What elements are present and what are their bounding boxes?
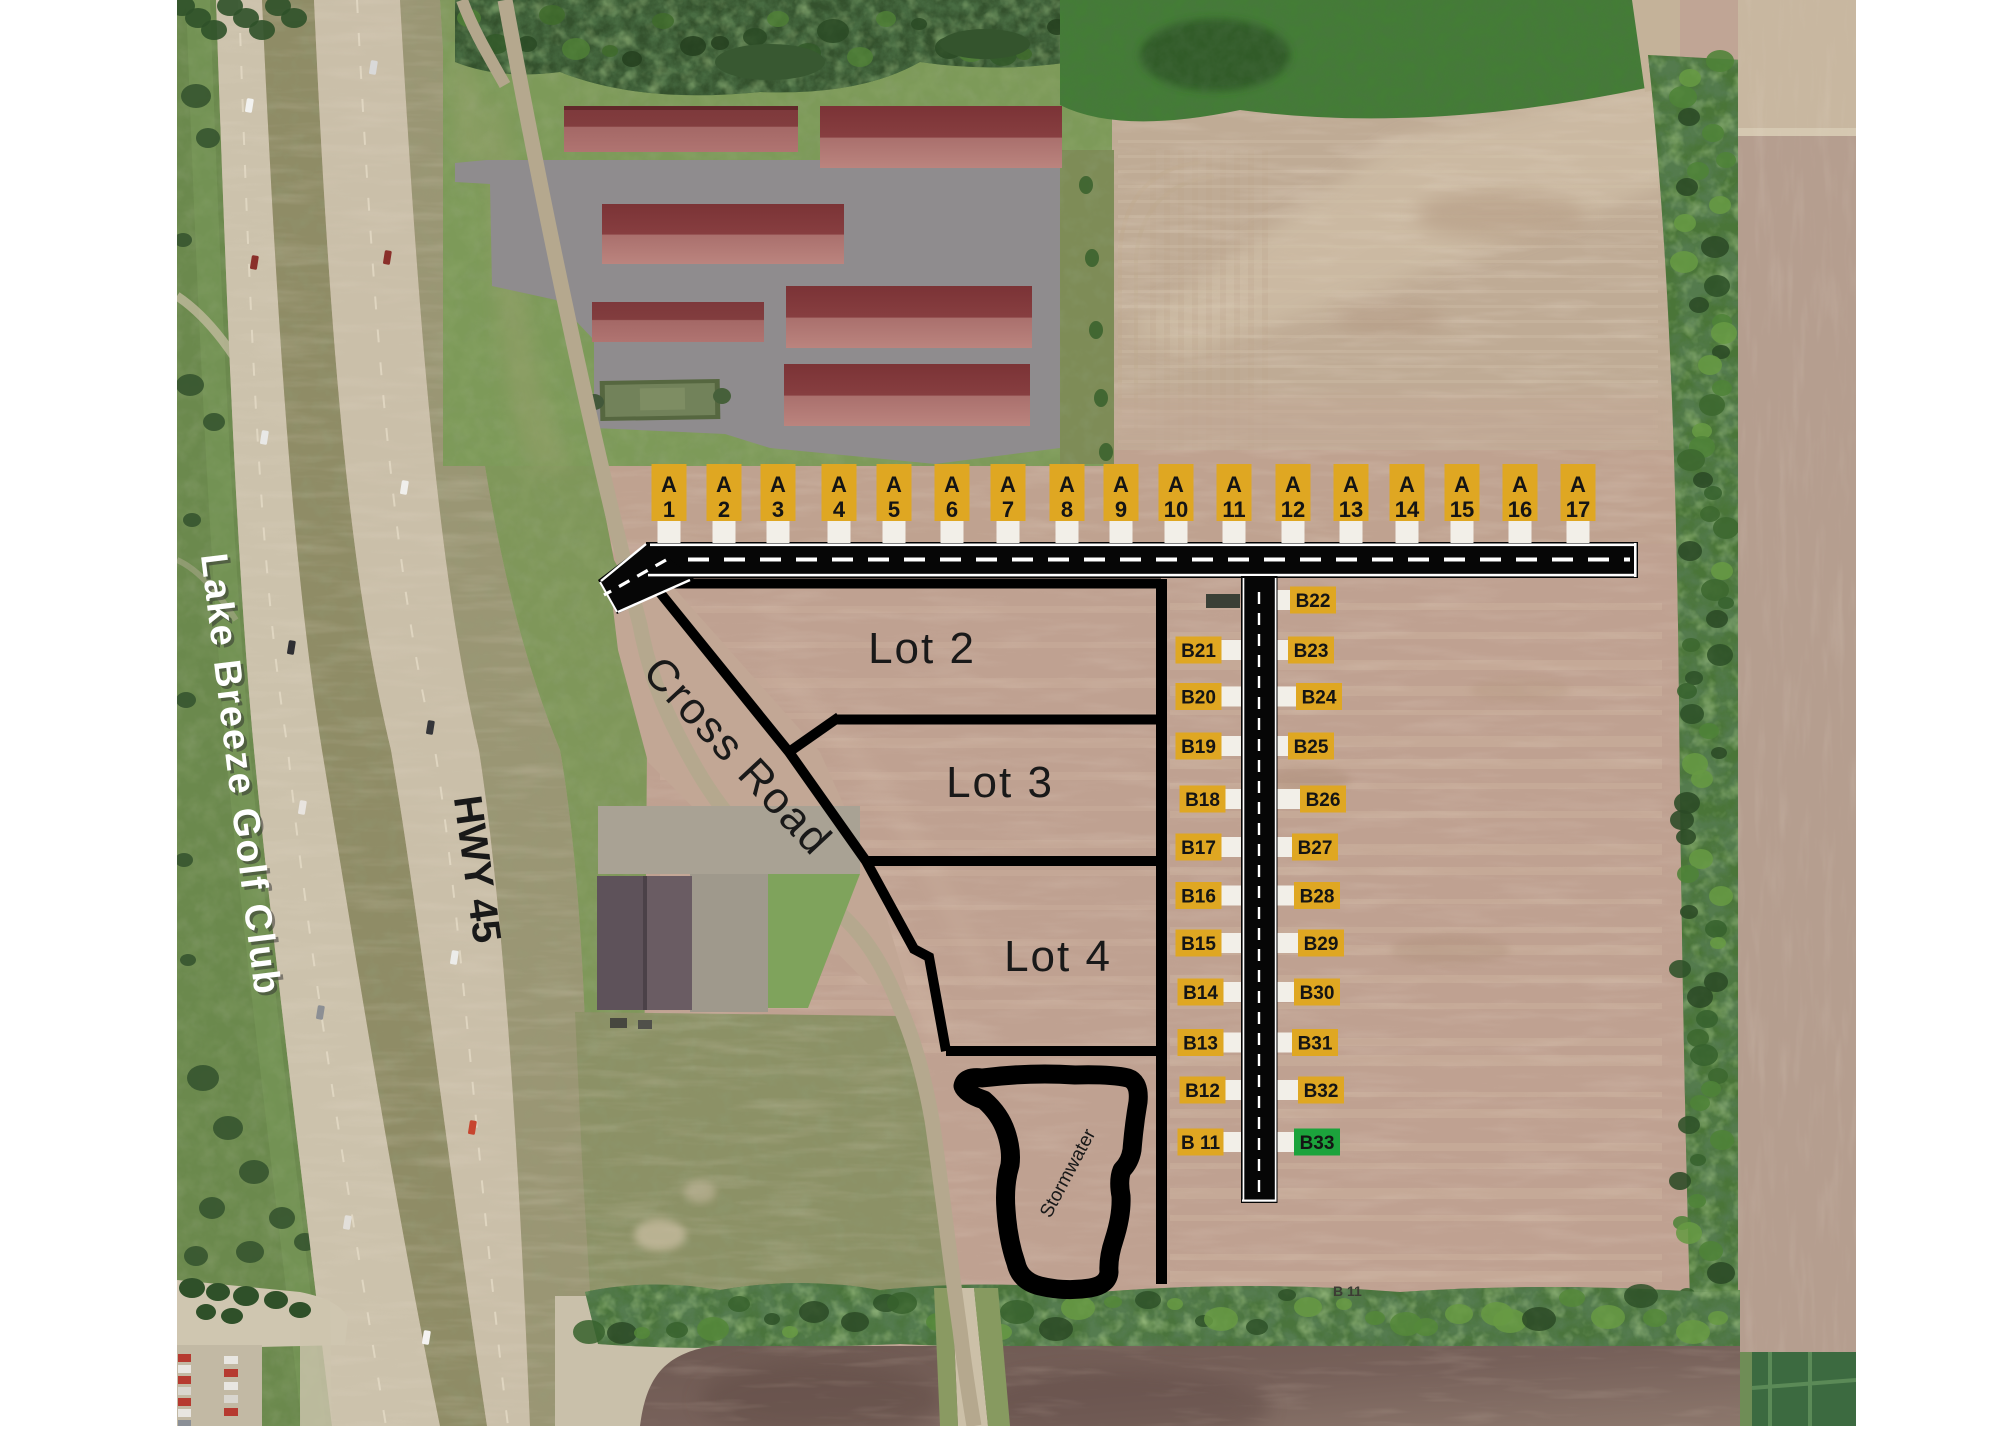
svg-text:A: A — [661, 472, 677, 497]
svg-text:3: 3 — [772, 497, 784, 522]
svg-text:A: A — [831, 472, 847, 497]
svg-text:11: 11 — [1222, 497, 1245, 522]
svg-text:B29: B29 — [1304, 934, 1339, 955]
svg-text:B 11: B 11 — [1181, 1133, 1221, 1154]
svg-text:5: 5 — [888, 497, 900, 522]
svg-text:A: A — [1168, 472, 1184, 497]
svg-text:15: 15 — [1450, 497, 1474, 522]
svg-text:12: 12 — [1281, 497, 1305, 522]
svg-text:B27: B27 — [1298, 838, 1333, 859]
svg-text:B18: B18 — [1185, 790, 1220, 811]
svg-text:B25: B25 — [1294, 737, 1329, 758]
svg-text:B15: B15 — [1181, 934, 1216, 955]
svg-text:B20: B20 — [1181, 688, 1216, 709]
svg-text:A: A — [716, 472, 732, 497]
svg-text:B28: B28 — [1300, 887, 1335, 908]
svg-text:B 11: B 11 — [1333, 1283, 1362, 1299]
svg-text:7: 7 — [1002, 497, 1014, 522]
svg-text:Lot 3: Lot 3 — [946, 758, 1054, 807]
svg-text:16: 16 — [1508, 497, 1532, 522]
svg-text:B22: B22 — [1296, 591, 1331, 612]
svg-text:A: A — [1000, 472, 1016, 497]
svg-text:B12: B12 — [1185, 1081, 1220, 1102]
svg-text:17: 17 — [1566, 497, 1590, 522]
svg-text:Lot 2: Lot 2 — [868, 624, 976, 673]
svg-text:B26: B26 — [1306, 790, 1341, 811]
svg-text:B32: B32 — [1304, 1081, 1339, 1102]
svg-text:6: 6 — [946, 497, 958, 522]
svg-text:B33: B33 — [1300, 1133, 1335, 1154]
svg-text:A: A — [770, 472, 786, 497]
svg-text:B13: B13 — [1183, 1034, 1218, 1055]
svg-text:A: A — [944, 472, 960, 497]
svg-text:B16: B16 — [1181, 887, 1216, 908]
svg-text:B24: B24 — [1302, 688, 1337, 709]
svg-text:A: A — [1226, 472, 1242, 497]
svg-text:B14: B14 — [1183, 983, 1218, 1004]
svg-text:B30: B30 — [1300, 983, 1335, 1004]
svg-text:A: A — [1570, 472, 1586, 497]
svg-text:B31: B31 — [1298, 1034, 1333, 1055]
svg-text:A: A — [1285, 472, 1301, 497]
svg-text:Lot 4: Lot 4 — [1004, 932, 1112, 981]
svg-text:B23: B23 — [1294, 641, 1329, 662]
svg-text:14: 14 — [1395, 497, 1420, 522]
svg-text:A: A — [1343, 472, 1359, 497]
svg-text:4: 4 — [833, 497, 846, 522]
svg-text:B21: B21 — [1181, 641, 1216, 662]
svg-text:A: A — [1059, 472, 1075, 497]
svg-text:2: 2 — [718, 497, 730, 522]
svg-text:A: A — [1512, 472, 1528, 497]
svg-text:A: A — [1454, 472, 1470, 497]
svg-text:A: A — [1399, 472, 1415, 497]
svg-text:A: A — [1113, 472, 1129, 497]
svg-text:8: 8 — [1061, 497, 1073, 522]
svg-text:13: 13 — [1339, 497, 1363, 522]
svg-text:10: 10 — [1164, 497, 1188, 522]
svg-text:B19: B19 — [1181, 737, 1216, 758]
svg-text:A: A — [886, 472, 902, 497]
svg-text:B17: B17 — [1181, 838, 1216, 859]
svg-text:9: 9 — [1115, 497, 1127, 522]
svg-text:1: 1 — [663, 497, 675, 522]
